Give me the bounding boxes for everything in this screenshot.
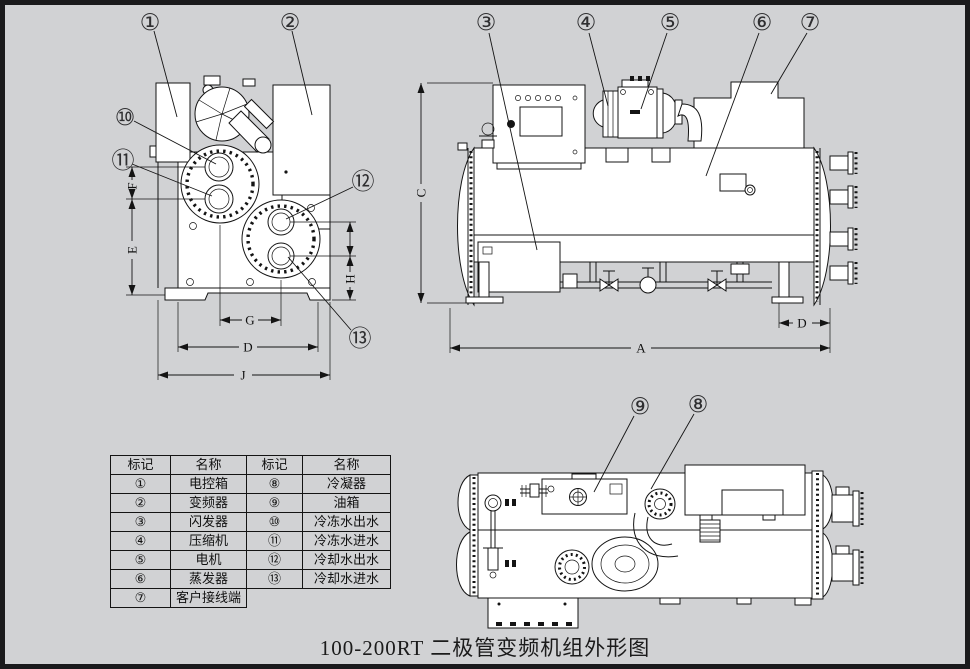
oil-tank (542, 474, 627, 514)
front-base (165, 288, 330, 300)
empty-cell (303, 589, 391, 608)
flash-tank (478, 242, 560, 292)
mark-cell: ⑧ (247, 475, 303, 494)
drawing-frame: F E G D J H ① ② ⑩ ⑪ ⑫ ⑬ (0, 0, 970, 669)
plan-water-nozzles (832, 487, 862, 585)
name-cell: 冷冻水出水 (303, 513, 391, 532)
mark-cell: ⑥ (111, 570, 171, 589)
name-cell: 压缩机 (171, 532, 247, 551)
side-view: C A D ③ ④ ⑤ ⑥ ⑦ (414, 10, 857, 356)
callout-9: ⑨ (630, 394, 651, 420)
inverter-box-front (273, 85, 330, 195)
table-row: ③ 闪发器 ⑩ 冷冻水出水 (111, 513, 391, 532)
mark-cell: ⑤ (111, 551, 171, 570)
front-view: F E G D J H ① ② ⑩ ⑪ ⑫ ⑬ (112, 10, 375, 383)
col-header-name-left: 名称 (171, 456, 247, 475)
callout-2: ② (280, 10, 301, 36)
dim-label-h: H (343, 274, 358, 283)
empty-cell (247, 589, 303, 608)
mark-cell: ③ (111, 513, 171, 532)
dim-label-j: J (240, 368, 245, 383)
col-header-mark-left: 标记 (111, 456, 171, 475)
compressor-front (195, 76, 274, 153)
name-cell: 冷凝器 (303, 475, 391, 494)
mark-cell: ⑩ (247, 513, 303, 532)
dim-label-d-front: D (243, 340, 252, 355)
control-box-front (156, 83, 190, 162)
mark-cell: ⑬ (247, 570, 303, 589)
dim-label-c: C (414, 189, 429, 198)
table-row: ⑦ 客户接线端 (111, 589, 391, 608)
side-piping (560, 262, 772, 293)
table-row: ⑤ 电机 ⑫ 冷却水出水 (111, 551, 391, 570)
callout-7: ⑦ (800, 10, 821, 36)
table-row: ① 电控箱 ⑧ 冷凝器 (111, 475, 391, 494)
drawing-title: 100-200RT 二极管变频机组外形图 (5, 632, 965, 662)
callout-13: ⑬ (349, 326, 372, 352)
col-header-name-right: 名称 (303, 456, 391, 475)
mark-cell: ⑫ (247, 551, 303, 570)
table-row: ④ 压缩机 ⑪ 冷冻水进水 (111, 532, 391, 551)
callout-5: ⑤ (660, 10, 681, 36)
name-cell: 电机 (171, 551, 247, 570)
dim-label-f: F (125, 182, 140, 189)
name-cell: 冷却水进水 (303, 570, 391, 589)
callout-1: ① (140, 10, 161, 36)
callout-8: ⑧ (688, 392, 709, 418)
dim-label-g: G (245, 313, 254, 328)
mark-cell: ⑦ (111, 589, 171, 608)
mark-cell: ⑪ (247, 532, 303, 551)
evaporator-tubesheet (181, 145, 259, 223)
name-cell: 蒸发器 (171, 570, 247, 589)
callout-12: ⑫ (352, 169, 375, 195)
parts-table: 标记 名称 标记 名称 ① 电控箱 ⑧ 冷凝器 ② 变频器 ⑨ 油箱 ③ 闪发器… (110, 455, 391, 608)
dim-label-e: E (125, 246, 140, 254)
mark-cell: ① (111, 475, 171, 494)
callout-10: ⑩ (115, 105, 136, 131)
dim-label-a: A (636, 341, 646, 356)
condenser-tubesheet (242, 200, 320, 278)
name-cell: 客户接线端 (171, 589, 247, 608)
name-cell: 冷却水出水 (303, 551, 391, 570)
table-row: ② 变频器 ⑨ 油箱 (111, 494, 391, 513)
callout-11: ⑪ (112, 148, 135, 174)
control-panel-side (493, 85, 585, 169)
name-cell: 冷冻水进水 (303, 532, 391, 551)
mark-cell: ④ (111, 532, 171, 551)
name-cell: 闪发器 (171, 513, 247, 532)
mark-cell: ② (111, 494, 171, 513)
callout-6: ⑥ (752, 10, 773, 36)
col-header-mark-right: 标记 (247, 456, 303, 475)
plan-bottom-box (488, 598, 578, 628)
callout-3: ③ (476, 10, 497, 36)
side-water-nozzles (830, 152, 856, 284)
name-cell: 变频器 (171, 494, 247, 513)
table-header-row: 标记 名称 标记 名称 (111, 456, 391, 475)
plan-view: ⑨ ⑧ (457, 392, 863, 628)
name-cell: 油箱 (303, 494, 391, 513)
dim-label-d-side: D (797, 316, 806, 331)
table-row: ⑥ 蒸发器 ⑬ 冷却水进水 (111, 570, 391, 589)
terminal-box (694, 82, 804, 148)
name-cell: 电控箱 (171, 475, 247, 494)
mark-cell: ⑨ (247, 494, 303, 513)
callout-4: ④ (576, 10, 597, 36)
